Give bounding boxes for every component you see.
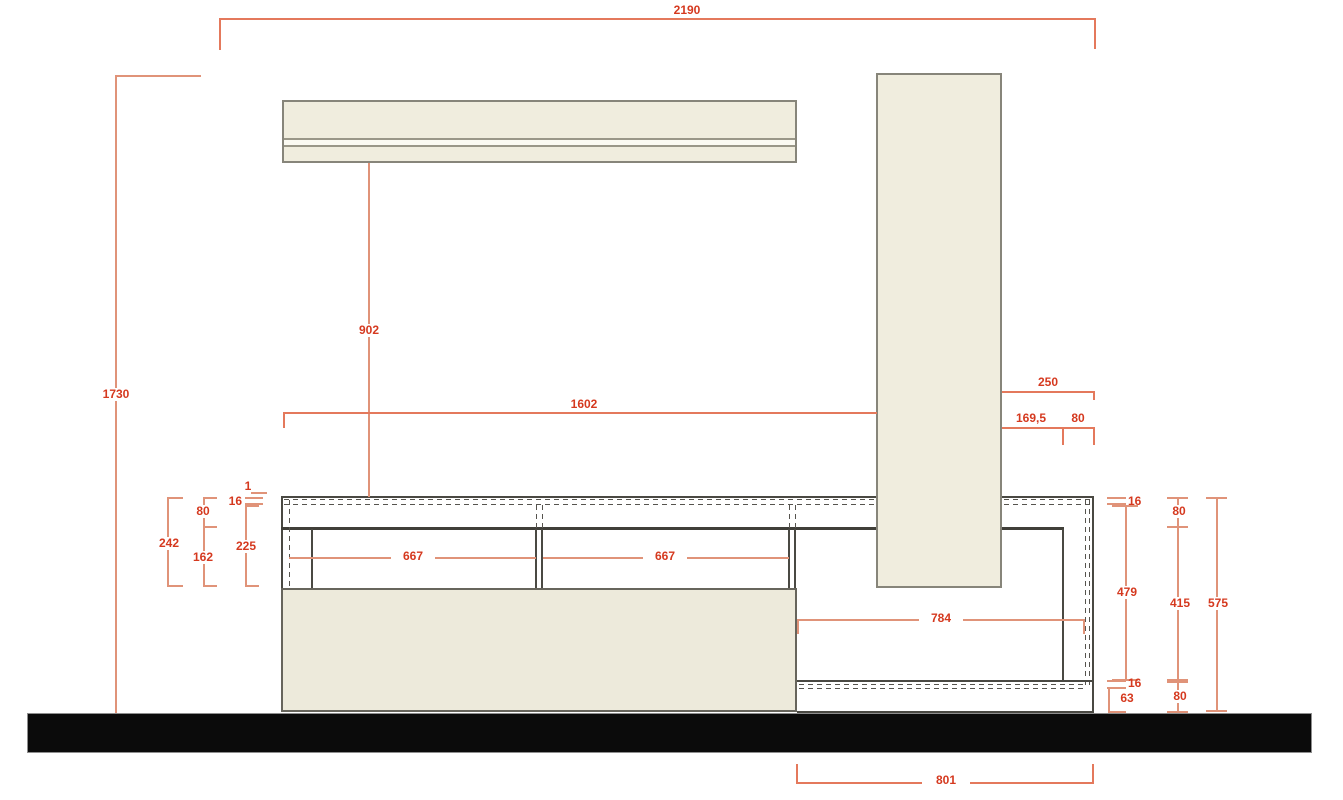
dim-784-tick-left (797, 619, 799, 634)
dim-2190-line (219, 18, 1096, 20)
dim-80-rb-tick-bottom (1167, 711, 1188, 713)
dim-1602-tick-left (283, 412, 285, 428)
dim-667b-label: 667 (643, 550, 687, 563)
dim-575-tick-top (1206, 497, 1227, 499)
dim-16-left-label: 16 (214, 495, 242, 508)
wall-shelf-groove-bottom-line (284, 145, 795, 147)
dim-80-top-label: 80 (1062, 412, 1094, 425)
dim-575-tick-bottom (1206, 710, 1227, 712)
dim-16-left-tick-top (245, 497, 263, 499)
dim-225-tick-bottom (245, 585, 259, 587)
dim-2190-tick-left (219, 18, 221, 50)
cabinet-left-edge (281, 496, 283, 589)
floor-plinth-bar (27, 713, 1312, 753)
dim-63-tick-bottom (1108, 711, 1126, 713)
dim-242-tick-top (167, 497, 183, 499)
tall-side-panel (876, 73, 1002, 588)
bay-end-divider-right-line (794, 529, 796, 589)
bay-end-hidden-line-a (789, 505, 790, 529)
dim-162-label: 162 (182, 551, 224, 564)
dim-801-tick-left (796, 764, 798, 784)
dim-1602-label: 1602 (556, 398, 612, 411)
niche-bottom-hidden-line-a (799, 684, 1086, 685)
dim-225-tick-top (245, 505, 259, 507)
dim-63-tick-top (1108, 687, 1126, 689)
dim-16-rt-tick-top (1107, 497, 1126, 499)
dim-242-tick-bottom (167, 585, 183, 587)
dim-575-label: 575 (1196, 597, 1240, 610)
bay-left-side-panel (311, 529, 313, 589)
dim-1602-line (283, 412, 877, 414)
bay-divider-right-line (541, 529, 543, 589)
dim-16-rb-tick-top (1107, 680, 1126, 682)
dim-80-rt-label: 80 (1157, 505, 1201, 518)
bay-divider-left-line (535, 529, 537, 589)
dim-16-rb-label: 16 (1128, 677, 1156, 690)
bay-divider-hidden-line-b (542, 505, 543, 529)
dim-250-line (1002, 391, 1095, 393)
dim-63-label: 63 (1110, 692, 1144, 705)
dim-169-label: 169,5 (1004, 412, 1058, 425)
niche-bottom-shelf-edge (797, 680, 1094, 682)
dim-242-label: 242 (148, 537, 190, 550)
bay-end-hidden-line-b (795, 505, 796, 529)
dim-250-tick-right (1093, 391, 1095, 400)
dim-162-tick-bottom (203, 585, 217, 587)
dim-80-rt-tick-top (1167, 497, 1188, 499)
dim-479-tick-top (1112, 505, 1138, 507)
dim-667a-label: 667 (391, 550, 435, 563)
dim-169-line (1002, 427, 1095, 429)
niche-right-side-panel (1062, 529, 1064, 682)
dim-1730-tick-top (115, 75, 201, 77)
dim-2190-label: 2190 (658, 4, 716, 17)
dim-250-label: 250 (1026, 376, 1070, 389)
dim-80-rb-tick-top (1167, 681, 1188, 683)
dim-479-label: 479 (1105, 586, 1149, 599)
dim-902-label: 902 (347, 324, 391, 337)
dim-784-label: 784 (919, 612, 963, 625)
wall-shelf (282, 100, 797, 163)
dim-784-tick-right (1083, 619, 1085, 634)
dim-1-label: 1 (242, 480, 254, 493)
dim-80-left-tick-bottom (203, 526, 217, 528)
dim-169-tick-right (1093, 427, 1095, 445)
dim-1730-label: 1730 (93, 388, 139, 401)
bay-divider-hidden-line-a (536, 505, 537, 529)
dim-225-label: 225 (224, 540, 268, 553)
right-hidden-edge-b (1089, 500, 1090, 689)
dim-80-rb-label: 80 (1158, 690, 1202, 703)
dim-2190-tick-right (1094, 18, 1096, 49)
dim-801-label: 801 (922, 774, 970, 787)
niche-bottom-hidden-line-b (799, 688, 1086, 689)
dim-169-tick-mid (1062, 427, 1064, 445)
cabinet-left-hidden-edge (289, 500, 290, 588)
technical-drawing-canvas: 2190 1730 902 1602 250 169,5 80 242 80 1… (0, 0, 1343, 800)
right-hidden-edge-a (1085, 500, 1086, 689)
bay-end-divider-left-line (788, 529, 790, 589)
dim-801-tick-right (1092, 764, 1094, 784)
cabinet-door-front (281, 588, 797, 712)
